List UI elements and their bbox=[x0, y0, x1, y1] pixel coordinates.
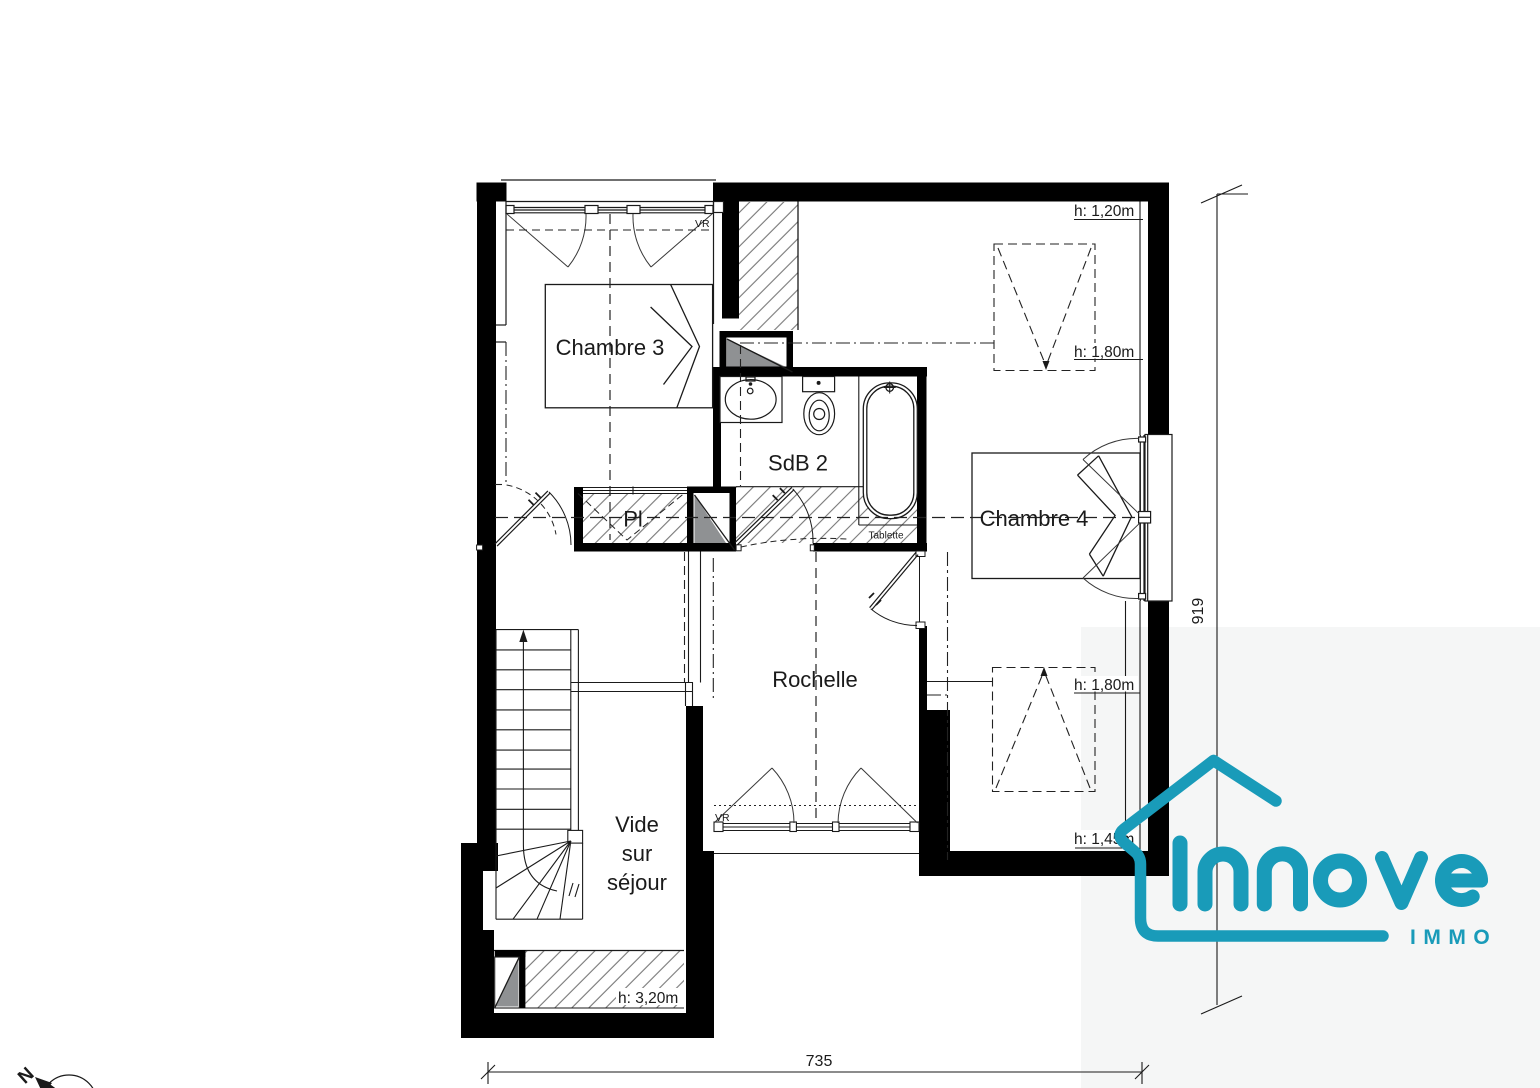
svg-text:Pl: Pl bbox=[623, 507, 643, 532]
svg-text:sur: sur bbox=[622, 841, 653, 866]
svg-text:h: 1,80m: h: 1,80m bbox=[1074, 677, 1134, 694]
svg-text:SdB 2: SdB 2 bbox=[768, 451, 828, 476]
svg-text:735: 735 bbox=[806, 1053, 833, 1070]
svg-text:VR: VR bbox=[715, 812, 730, 824]
svg-text:IMMO: IMMO bbox=[1410, 926, 1497, 949]
svg-text:Vide: Vide bbox=[615, 812, 659, 837]
svg-text:h: 1,80m: h: 1,80m bbox=[1074, 344, 1134, 361]
svg-text:919: 919 bbox=[1190, 598, 1207, 625]
svg-text:Rochelle: Rochelle bbox=[772, 667, 858, 692]
svg-text:Chambre 3: Chambre 3 bbox=[556, 335, 665, 360]
svg-text:Tablette: Tablette bbox=[869, 531, 904, 542]
svg-text:VR: VR bbox=[695, 218, 710, 230]
svg-text:h: 1,20m: h: 1,20m bbox=[1074, 203, 1134, 220]
svg-text:Chambre 4: Chambre 4 bbox=[980, 506, 1089, 531]
svg-text:séjour: séjour bbox=[607, 870, 667, 895]
svg-text:h: 3,20m: h: 3,20m bbox=[618, 990, 678, 1007]
